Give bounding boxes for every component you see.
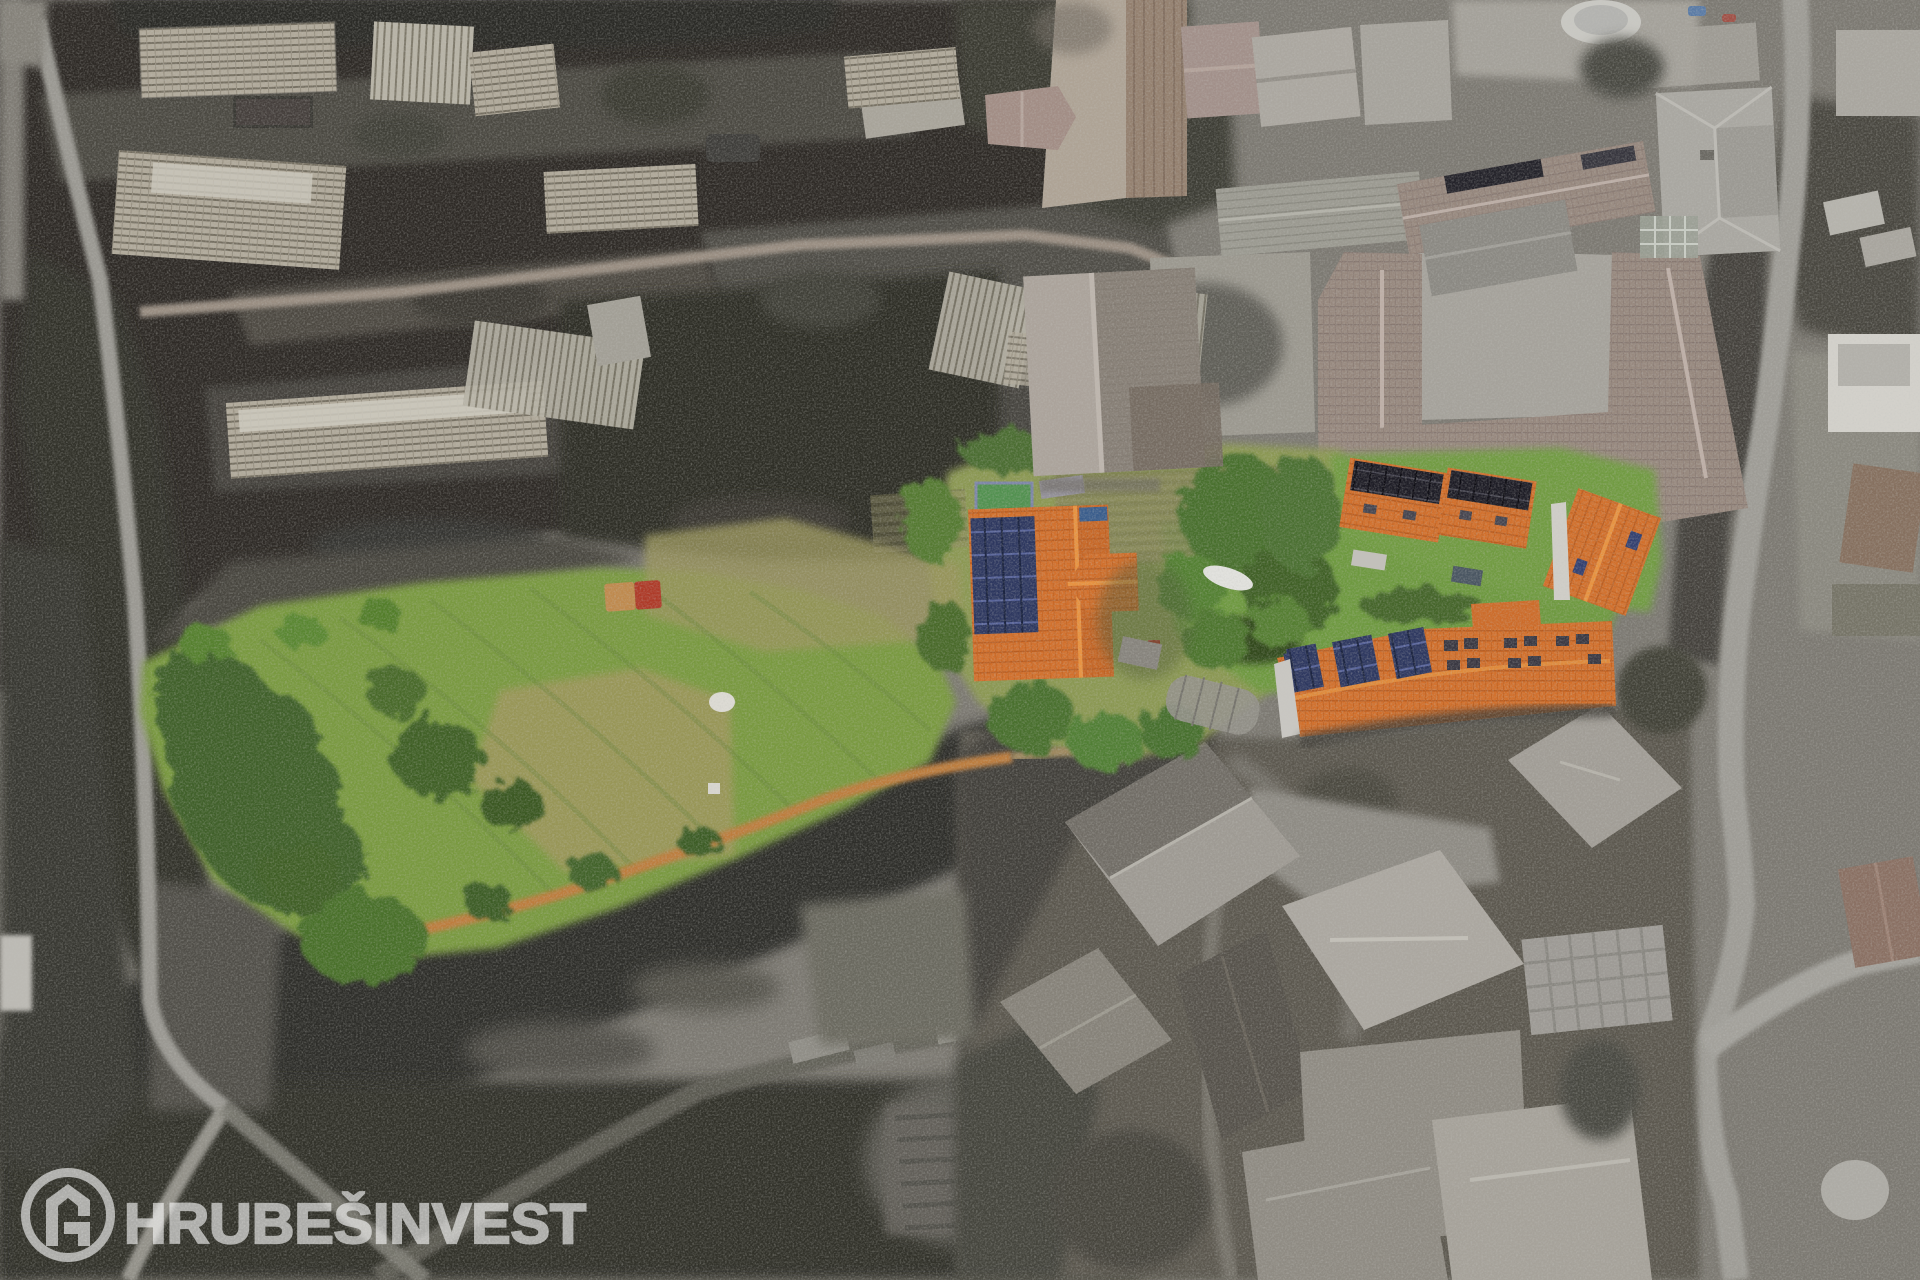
svg-text:HRUBEŠINVEST: HRUBEŠINVEST: [124, 1191, 586, 1256]
